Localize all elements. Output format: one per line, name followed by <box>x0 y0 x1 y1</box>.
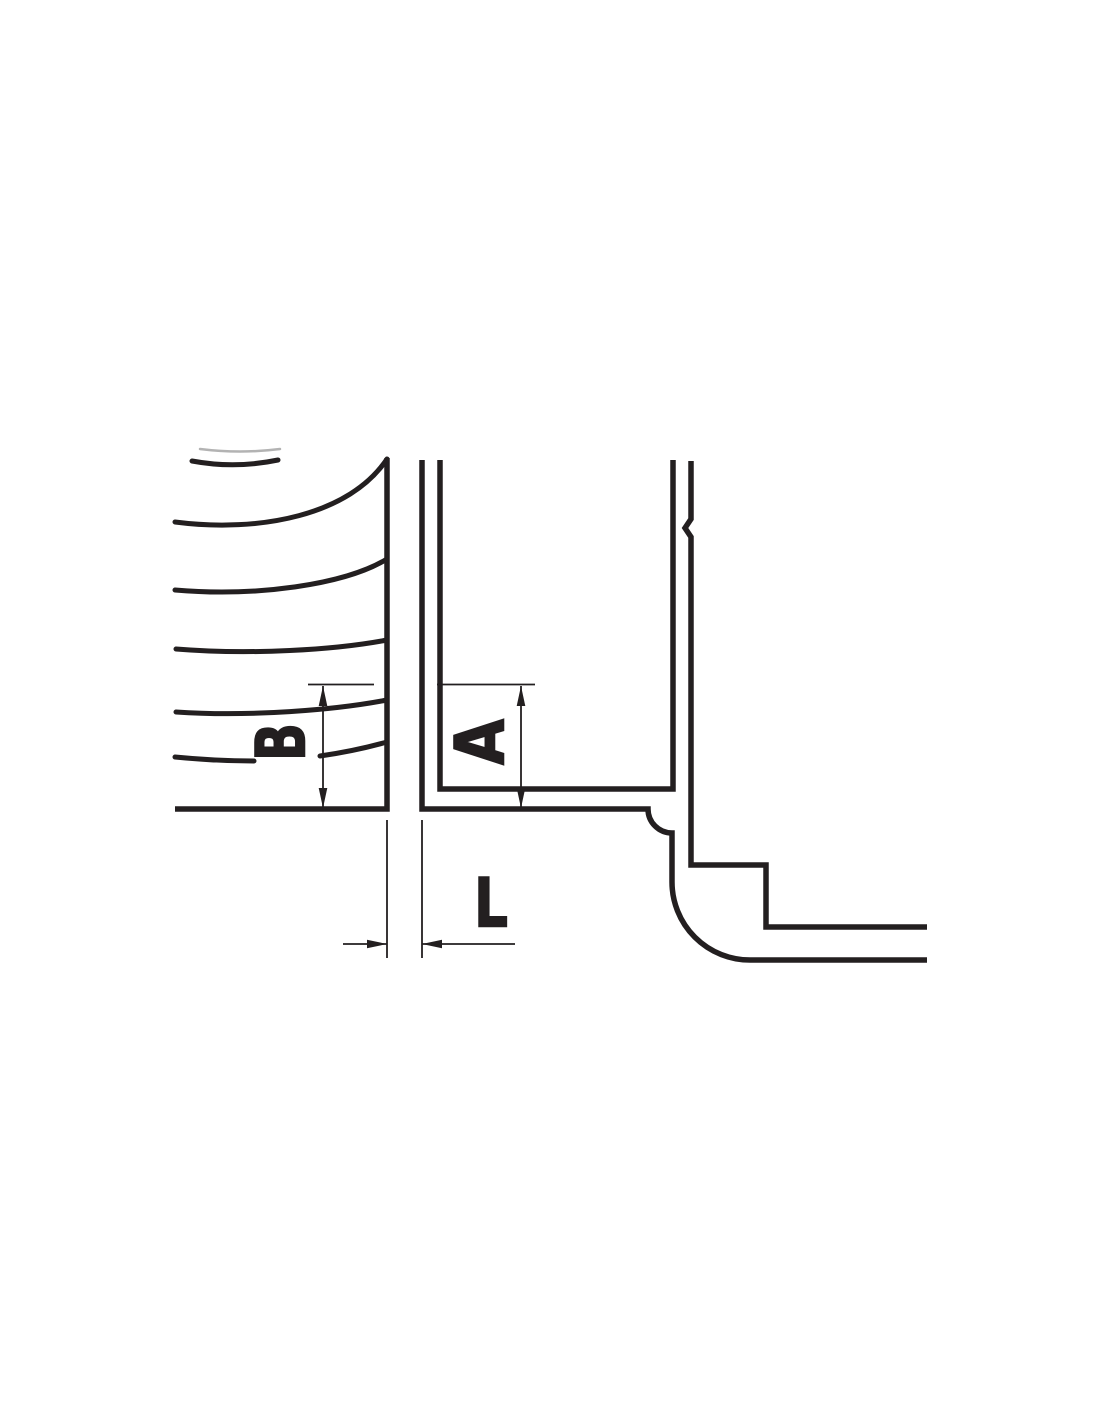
dim-l-label: L <box>474 865 508 944</box>
flow-curve-4 <box>176 640 387 652</box>
dim-b-arrow-down <box>319 788 328 808</box>
flow-curve-1 <box>192 460 278 465</box>
dim-l-arrow-left <box>422 940 442 949</box>
page: B A L <box>0 0 1100 1422</box>
flow-curve-2 <box>175 459 387 525</box>
flow-curve-6-right <box>320 742 387 756</box>
flow-curve-faint <box>200 449 280 452</box>
dimension-l: L <box>343 820 515 958</box>
dim-a-arrow-up <box>517 686 526 706</box>
flow-curve-5 <box>176 700 387 714</box>
technical-drawing: B A L <box>0 0 1100 1422</box>
dim-l-arrow-right <box>367 940 387 949</box>
dim-b-label: B <box>243 723 322 761</box>
dim-b-arrow-up <box>319 686 328 706</box>
flow-curves <box>175 449 387 761</box>
dim-a-arrow-down <box>517 788 526 808</box>
casing-inner-step-profile <box>685 461 927 927</box>
dim-a-label: A <box>442 719 521 765</box>
flow-curve-3 <box>175 559 387 592</box>
